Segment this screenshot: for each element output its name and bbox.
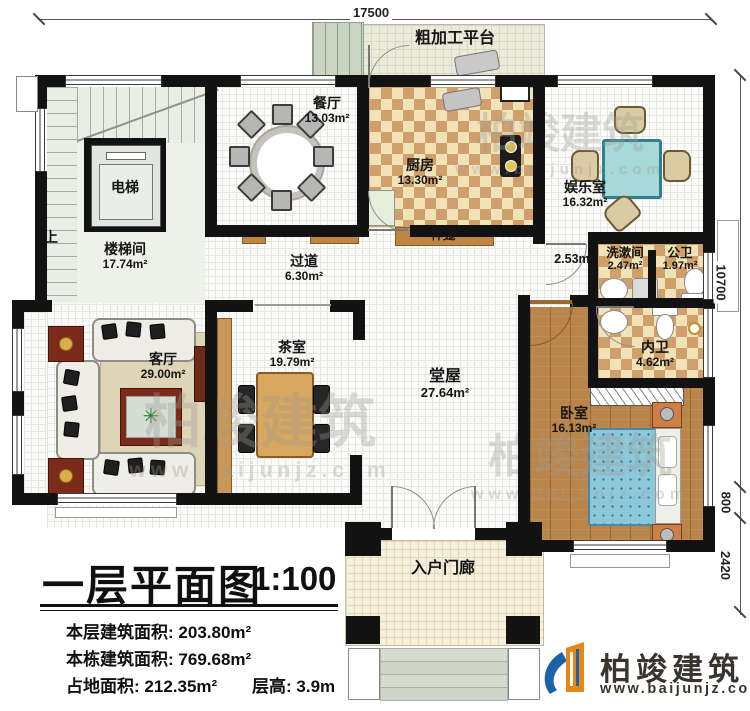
door-leaf [391, 486, 393, 528]
stat-footprint-area: 占地面积: 212.35m² [66, 672, 217, 697]
window [12, 415, 24, 475]
floor-plan: ✳ 柏竣建筑 www.baijunjz.com 柏竣建筑 www.baijunj… [0, 0, 750, 711]
shower-drain [688, 322, 701, 335]
sofa-cushion [63, 369, 80, 386]
sofa-cushion [149, 459, 165, 475]
entertainment-chair [614, 106, 646, 134]
porch-column [345, 522, 381, 556]
tea-chair [313, 385, 330, 414]
stat-floor-height: 层高: 3.9m [252, 672, 335, 697]
dimension-label-top: 17500 [350, 5, 392, 20]
wall-below-dining [205, 225, 369, 237]
elevator-door-slit [106, 152, 146, 160]
wall-below-kitchen [410, 225, 545, 237]
stair-treads-left [47, 87, 77, 301]
floor-living-bump [24, 312, 47, 493]
dimension-label-right-3: 2420 [718, 548, 733, 583]
window [240, 75, 336, 87]
wall-stair-dining [205, 87, 217, 237]
wall-kitchen-ent [533, 87, 545, 244]
porch-pillar [506, 616, 540, 644]
sofa-cushion [63, 421, 79, 437]
dimension-label-right-2: 800 [718, 489, 733, 517]
sofa-cushion [127, 457, 143, 473]
porch-step [380, 661, 508, 675]
window [557, 75, 653, 87]
end-table-inlay [59, 469, 73, 483]
porch-step [380, 648, 508, 662]
window [573, 540, 667, 552]
window [57, 493, 177, 505]
window [12, 328, 24, 392]
wall-bedroom-left [518, 295, 530, 540]
door-leaf [530, 300, 572, 304]
end-table-inlay [59, 337, 73, 351]
ledge [16, 76, 38, 112]
stat-floor-area: 本层建筑面积: 203.80m² [66, 618, 251, 643]
mahjong-table [602, 139, 662, 199]
wall-below-ent [588, 232, 715, 244]
coffee-table-glass: ✳ [126, 396, 176, 438]
ledge [570, 554, 670, 568]
outdoor-steps [312, 22, 364, 79]
window [703, 425, 715, 507]
wall-tea-hall-stub [350, 455, 362, 505]
wall-bath-left-up [588, 244, 598, 298]
ledge [55, 507, 177, 518]
entertainment-chair [571, 150, 599, 182]
sofa-cushion [149, 323, 165, 339]
door-leaf [596, 306, 634, 308]
title-underline-thick [40, 604, 338, 607]
stove-burner [505, 160, 517, 172]
wall-bath-bedroom [588, 378, 715, 388]
dining-chair [313, 146, 334, 167]
door-leaf [546, 243, 586, 245]
side-cabinet [217, 318, 232, 497]
wall-dining-kitchen [357, 87, 369, 237]
door-leaf [368, 45, 370, 87]
dimension-line-right [740, 75, 741, 615]
door-leaf [368, 229, 408, 231]
sofa-cushion [61, 395, 78, 412]
dining-chair [271, 190, 292, 211]
stove-burner [505, 141, 517, 153]
window [430, 75, 496, 87]
window [703, 308, 715, 378]
door-leaf [474, 486, 476, 528]
stat-building-area: 本栋建筑面积: 769.68m² [66, 645, 251, 670]
wall-wash-wc [648, 250, 656, 300]
page-scale: 1:100 [252, 560, 336, 598]
tea-chair [313, 424, 330, 453]
tea-table [256, 372, 314, 458]
window [65, 75, 162, 87]
entertainment-chair [663, 150, 691, 182]
porch-step [380, 687, 508, 701]
brand-logo-icon [540, 638, 596, 700]
porch-pillar [346, 616, 380, 644]
window [35, 108, 47, 172]
pillow [658, 474, 677, 506]
opening-line [255, 304, 331, 306]
sofa-cushion [103, 459, 120, 476]
nightstand-knob [660, 407, 674, 421]
elevator-cab-inner [99, 164, 153, 220]
sofa-cushion [101, 323, 118, 340]
dimension-label-right-1: 10700 [714, 261, 729, 303]
dining-chair [272, 104, 293, 125]
brand-website: www.baijunjz.com [600, 681, 750, 697]
dining-chair [229, 146, 250, 167]
sofa-cushion [125, 321, 141, 337]
tea-chair [238, 424, 255, 453]
plant-icon: ✳ [143, 406, 160, 428]
title-underline-thin [40, 610, 338, 611]
tea-chair [238, 385, 255, 414]
wall-tea-left [205, 300, 217, 493]
wall-corridor-a [205, 300, 253, 312]
pillow [658, 436, 677, 468]
wall-corridor-stub [353, 300, 365, 340]
porch-side-block [348, 648, 380, 700]
porch-step [380, 674, 508, 688]
porch-side-block [508, 648, 540, 700]
toilet-icon [656, 314, 674, 340]
